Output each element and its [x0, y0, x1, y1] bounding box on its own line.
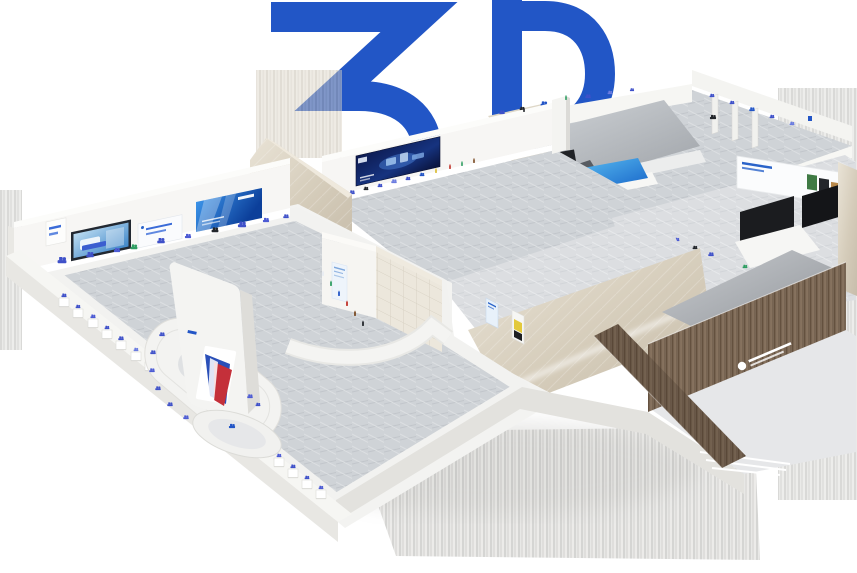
scene-canvas[interactable] — [0, 0, 857, 573]
viewer-stage[interactable]: 3D — [0, 0, 857, 573]
poster-light-blue[interactable] — [332, 262, 347, 302]
banner-series-plate[interactable] — [46, 218, 66, 246]
poster-yellow-black[interactable] — [512, 310, 524, 344]
blue-flag-marker — [808, 116, 812, 121]
corner-pillar — [552, 96, 570, 154]
